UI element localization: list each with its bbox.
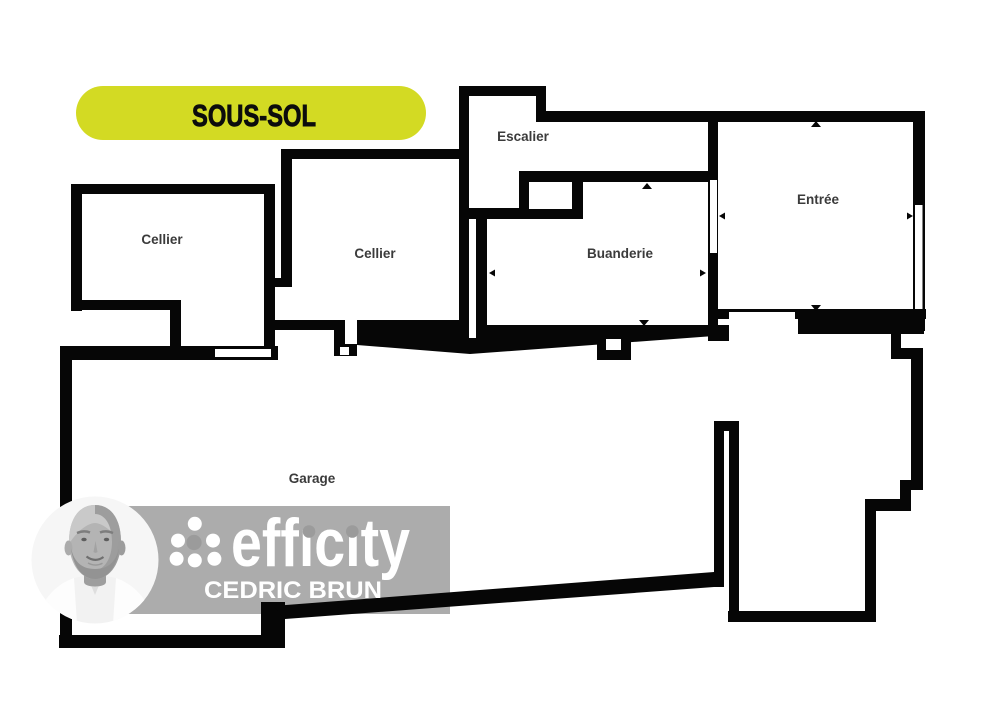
svg-text:Buanderie: Buanderie [587,246,654,261]
svg-text:CEDRIC BRUN: CEDRIC BRUN [204,577,382,604]
svg-text:Garage: Garage [289,471,336,486]
svg-text:effıcıty: effıcıty [231,505,410,581]
svg-text:Cellier: Cellier [141,232,183,247]
svg-text:Escalier: Escalier [497,129,550,144]
svg-text:Entrée: Entrée [797,192,840,207]
svg-text:SOUS-SOL: SOUS-SOL [192,99,316,133]
svg-text:Cellier: Cellier [354,246,396,261]
